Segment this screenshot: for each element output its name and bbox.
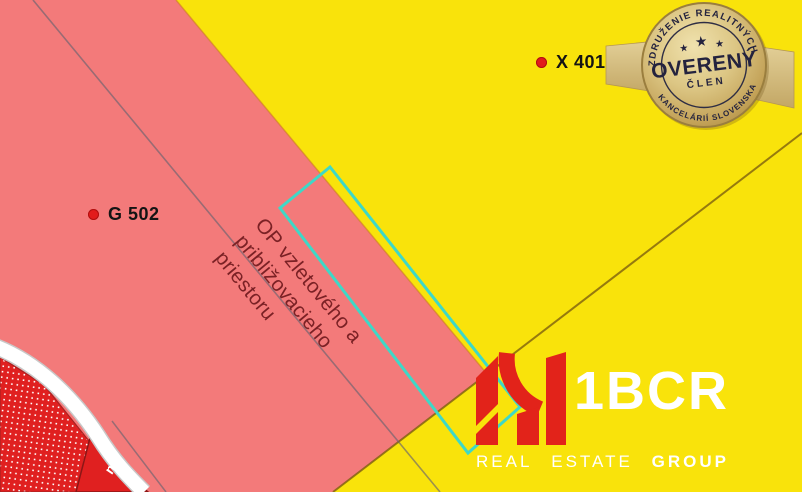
star-icon: ★	[679, 43, 689, 55]
parcel-label-text: G 502	[108, 204, 160, 225]
certified-member-badge: ZDRUŽENIE REALITNÝCH KANCELÁRIÍ SLOVENSK…	[588, 0, 802, 136]
map-canvas[interactable]: OP vzletového a približovacieho priestor…	[0, 0, 802, 492]
star-icon: ★	[694, 32, 708, 49]
parcel-label-g502: G 502	[88, 204, 160, 225]
tagline-word: ESTATE	[551, 452, 633, 472]
parcel-point-icon	[88, 209, 99, 220]
star-icon: ★	[714, 38, 724, 50]
brand-logo: 1BCR REAL ESTATE GROUP	[473, 348, 783, 480]
tagline-word: GROUP	[652, 452, 729, 472]
brand-name: 1BCR	[574, 364, 729, 418]
parcel-point-icon	[536, 57, 547, 68]
brand-tagline: REAL ESTATE GROUP	[476, 452, 729, 472]
tagline-word: REAL	[476, 452, 532, 472]
brand-logo-mark-icon	[473, 350, 567, 445]
